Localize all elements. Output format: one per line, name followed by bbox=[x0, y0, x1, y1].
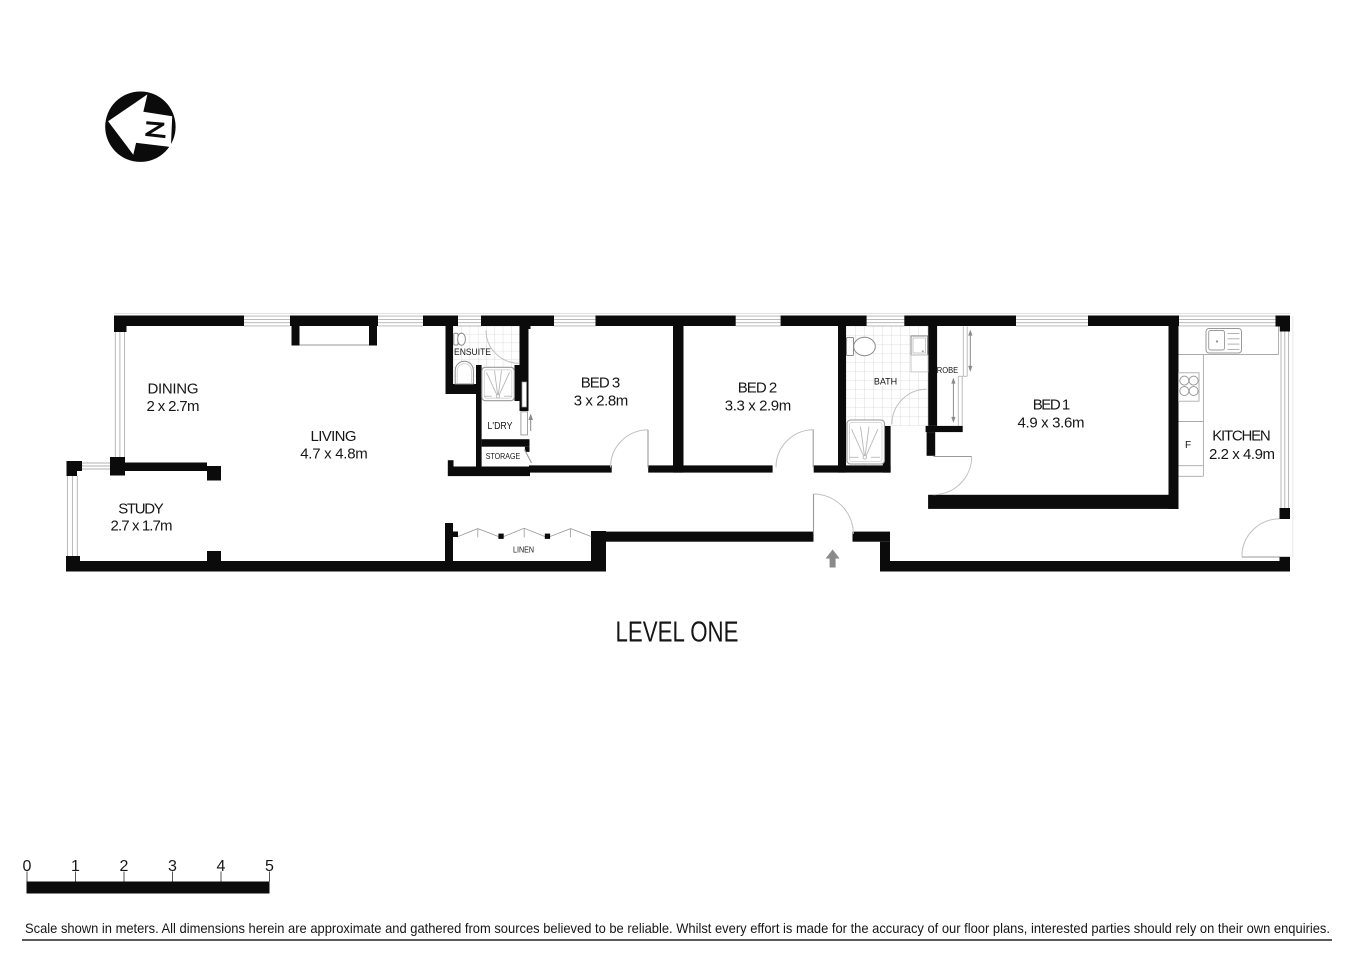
svg-text:BATH: BATH bbox=[874, 377, 897, 387]
svg-text:STORAGE: STORAGE bbox=[486, 451, 521, 461]
svg-text:L'DRY: L'DRY bbox=[488, 421, 513, 432]
svg-text:4.7 x 4.8m: 4.7 x 4.8m bbox=[300, 446, 368, 463]
svg-text:4.9 x 3.6m: 4.9 x 3.6m bbox=[1018, 415, 1085, 432]
svg-text:KITCHEN: KITCHEN bbox=[1212, 428, 1271, 445]
svg-text:STUDY: STUDY bbox=[118, 501, 164, 518]
svg-text:2.7 x 1.7m: 2.7 x 1.7m bbox=[111, 518, 173, 535]
svg-text:LEVEL ONE: LEVEL ONE bbox=[616, 617, 739, 649]
svg-text:BED 1: BED 1 bbox=[1033, 397, 1071, 414]
svg-text:BED 2: BED 2 bbox=[738, 380, 778, 397]
svg-text:ENSUITE: ENSUITE bbox=[454, 347, 491, 357]
svg-text:LIVING: LIVING bbox=[311, 428, 357, 445]
svg-text:3 x 2.8m: 3 x 2.8m bbox=[574, 393, 629, 410]
svg-text:BED 3: BED 3 bbox=[581, 375, 621, 392]
svg-text:DINING: DINING bbox=[148, 381, 199, 398]
svg-text:ROBE: ROBE bbox=[937, 365, 959, 375]
svg-text:F: F bbox=[1185, 440, 1191, 451]
svg-text:3.3 x 2.9m: 3.3 x 2.9m bbox=[725, 398, 792, 415]
svg-text:2 x 2.7m: 2 x 2.7m bbox=[147, 398, 200, 415]
svg-text:2.2 x 4.9m: 2.2 x 4.9m bbox=[1209, 446, 1275, 463]
svg-text:Scale shown in meters. All dim: Scale shown in meters. All dimensions he… bbox=[25, 920, 1330, 936]
svg-text:LINEN: LINEN bbox=[513, 546, 534, 555]
